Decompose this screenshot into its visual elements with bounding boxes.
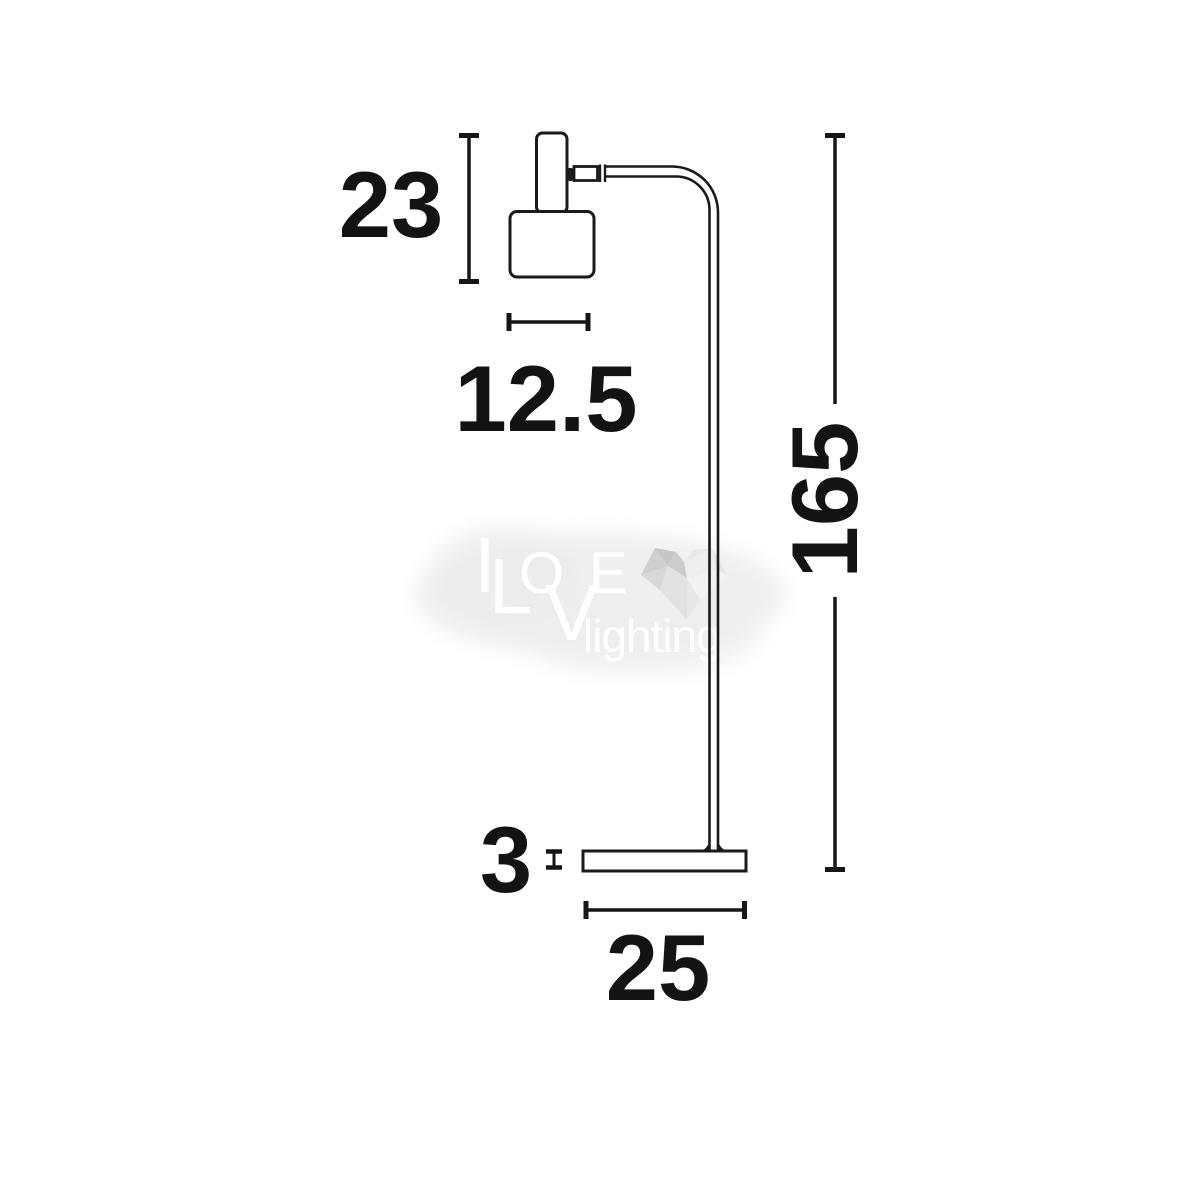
lamp-drawing bbox=[510, 133, 746, 871]
watermark-letter-e: E bbox=[589, 541, 628, 606]
dim-label-head-height: 23 bbox=[339, 152, 444, 257]
lamp-arm-inner-line bbox=[604, 177, 710, 852]
dim-label-base-width: 25 bbox=[606, 915, 711, 1020]
lamp-base bbox=[583, 851, 746, 871]
dim-shade-width: 12.5 bbox=[455, 313, 638, 451]
lamp-arm-joint bbox=[574, 167, 598, 181]
watermark: I L O V E lighting bbox=[415, 521, 785, 675]
lamp-head-stem bbox=[537, 133, 568, 213]
diagram-canvas: I L O V E lighting bbox=[0, 0, 1200, 1200]
dim-total-height: 165 bbox=[772, 136, 877, 870]
lamp-shade bbox=[510, 212, 594, 278]
dim-label-total-height: 165 bbox=[772, 422, 877, 579]
dim-label-base-thickness: 3 bbox=[480, 807, 532, 912]
dim-base-width: 25 bbox=[586, 901, 745, 1020]
watermark-subtitle: lighting bbox=[583, 610, 721, 662]
dim-base-thickness: 3 bbox=[480, 807, 562, 912]
lamp-arm-outer-line bbox=[604, 167, 718, 852]
dim-label-shade-width: 12.5 bbox=[455, 346, 638, 451]
dim-head-height: 23 bbox=[339, 136, 479, 282]
floor-lamp-diagram: I L O V E lighting bbox=[0, 0, 1200, 1200]
lamp-pivot-knob bbox=[567, 168, 574, 181]
